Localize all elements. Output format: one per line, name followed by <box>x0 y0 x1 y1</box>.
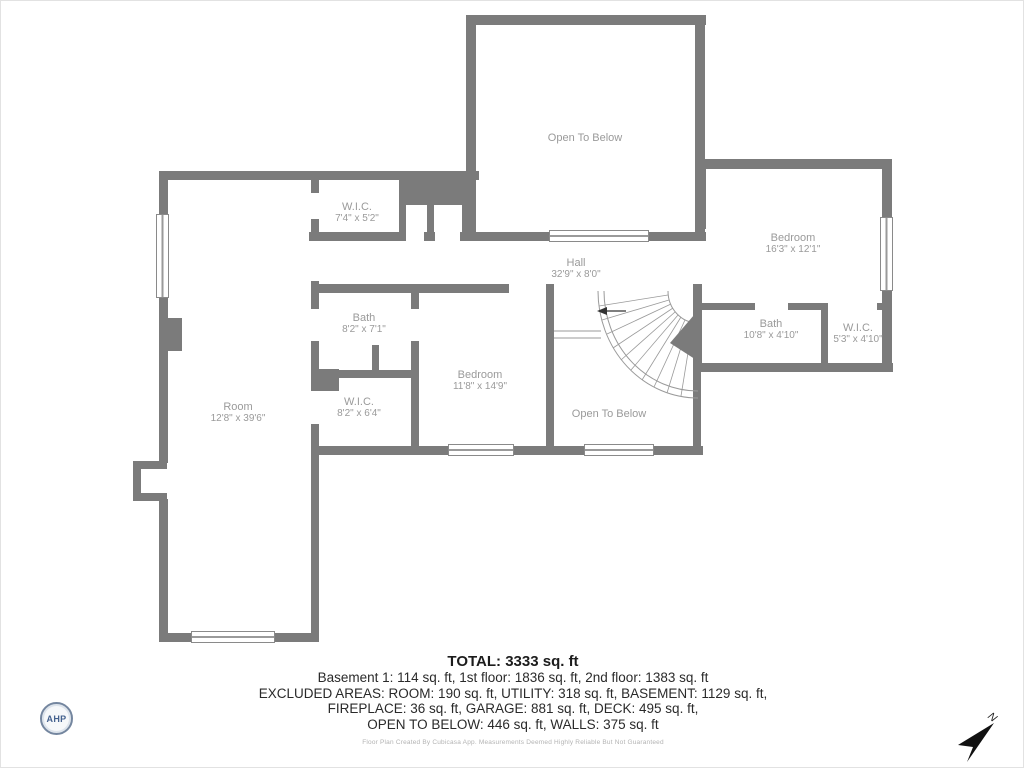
window <box>448 444 514 456</box>
floor-areas-text: Basement 1: 114 sq. ft, 1st floor: 1836 … <box>1 670 1024 686</box>
wall-segment <box>427 205 434 233</box>
wall-segment <box>821 310 828 363</box>
room-label-wic-right: W.I.C. 5'3" x 4'10" <box>788 322 928 346</box>
wall-segment <box>411 341 419 449</box>
window <box>156 214 169 298</box>
wall-segment <box>466 15 706 25</box>
wall-segment <box>699 303 755 310</box>
floor-plan: Open To Below W.I.C. 7'4" x 5'2" Bedroom… <box>1 1 1024 661</box>
room-label-hall: Hall 32'9" x 8'0" <box>506 257 646 281</box>
room-label-room: Room 12'8" x 39'6" <box>168 401 308 425</box>
total-area-text: TOTAL: 3333 sq. ft <box>1 653 1024 670</box>
north-arrow-icon: N <box>949 699 1013 767</box>
wall-segment <box>372 345 379 373</box>
wall-segment <box>399 205 406 233</box>
wall-segment <box>339 370 414 378</box>
wall-segment <box>698 169 706 229</box>
window <box>880 217 893 291</box>
wall-segment <box>159 499 168 642</box>
wall-segment <box>693 363 893 372</box>
excluded-areas-text: OPEN TO BELOW: 446 sq. ft, WALLS: 375 sq… <box>1 717 1024 733</box>
room-label-bath-right: Bath 10'8" x 4'10" <box>701 318 841 342</box>
logo-text: AHP <box>47 714 67 724</box>
wall-segment <box>311 369 339 391</box>
ahp-badge-logo: AHP <box>40 702 73 735</box>
wall-segment <box>311 284 509 293</box>
wall-segment <box>788 303 828 310</box>
window <box>191 631 275 643</box>
wall-segment <box>699 159 892 169</box>
staircase <box>551 279 707 411</box>
fireplace-block <box>168 318 182 351</box>
wall-segment <box>466 15 476 241</box>
excluded-areas-text: EXCLUDED AREAS: ROOM: 190 sq. ft, UTILIT… <box>1 686 1024 702</box>
room-label-bedroom-middle: Bedroom 11'8" x 14'9" <box>410 369 550 393</box>
wall-segment <box>311 424 319 642</box>
room-label-bath-left: Bath 8'2" x 7'1" <box>294 312 434 336</box>
wall-segment <box>311 180 319 193</box>
wall-segment <box>411 286 419 309</box>
window <box>584 444 654 456</box>
stair-wedge <box>670 315 701 363</box>
disclaimer-text: Floor Plan Created By Cubicasa App. Meas… <box>1 739 1024 747</box>
room-label-wic-left: W.I.C. 8'2" x 6'4" <box>289 396 429 420</box>
closet-block <box>399 174 469 205</box>
excluded-areas-text: FIREPLACE: 36 sq. ft, GARAGE: 881 sq. ft… <box>1 701 1024 717</box>
room-label-bedroom-right: Bedroom 16'3" x 12'1" <box>723 232 863 256</box>
wall-segment <box>311 341 319 369</box>
wall-segment <box>309 232 406 241</box>
wall-segment <box>424 232 435 241</box>
north-label: N <box>985 710 999 724</box>
floor-plan-screenshot: Open To Below W.I.C. 7'4" x 5'2" Bedroom… <box>0 0 1024 768</box>
window <box>549 230 649 242</box>
area-summary: TOTAL: 3333 sq. ft Basement 1: 114 sq. f… <box>1 653 1024 747</box>
room-label-open-to-below-top: Open To Below <box>515 132 655 144</box>
wall-segment <box>877 303 885 310</box>
